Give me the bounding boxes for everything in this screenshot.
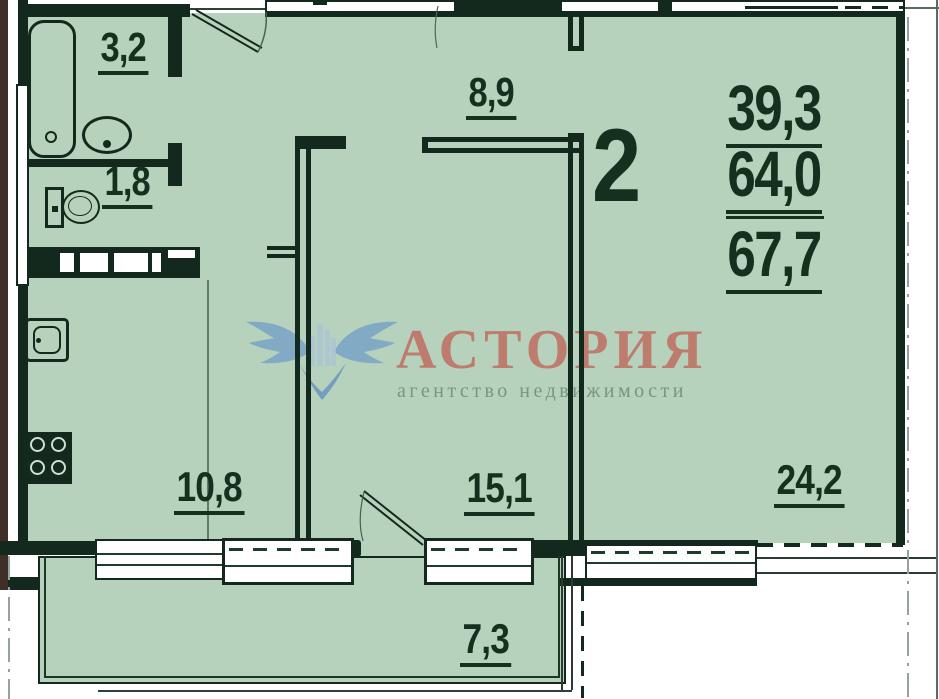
area-label-kitchen: 10,8 [174, 466, 244, 515]
area-label-balcony: 7,3 [460, 618, 512, 667]
area-label-room: 15,1 [464, 467, 534, 516]
balcony-door-arc [360, 492, 364, 541]
floor-plan: АСТОРИЯ агентство недвижимости [0, 0, 939, 699]
area-label-bathroom: 3,2 [98, 27, 148, 75]
apartment-number: 2 [592, 114, 641, 218]
area-label-living-room: 24,2 [774, 459, 844, 508]
area-label-wc: 1,8 [102, 161, 152, 209]
summary-total-with-balcony: 67,7 [726, 222, 822, 294]
area-label-hallway: 8,9 [466, 72, 516, 120]
summary-total-area: 64,0 [726, 142, 822, 214]
